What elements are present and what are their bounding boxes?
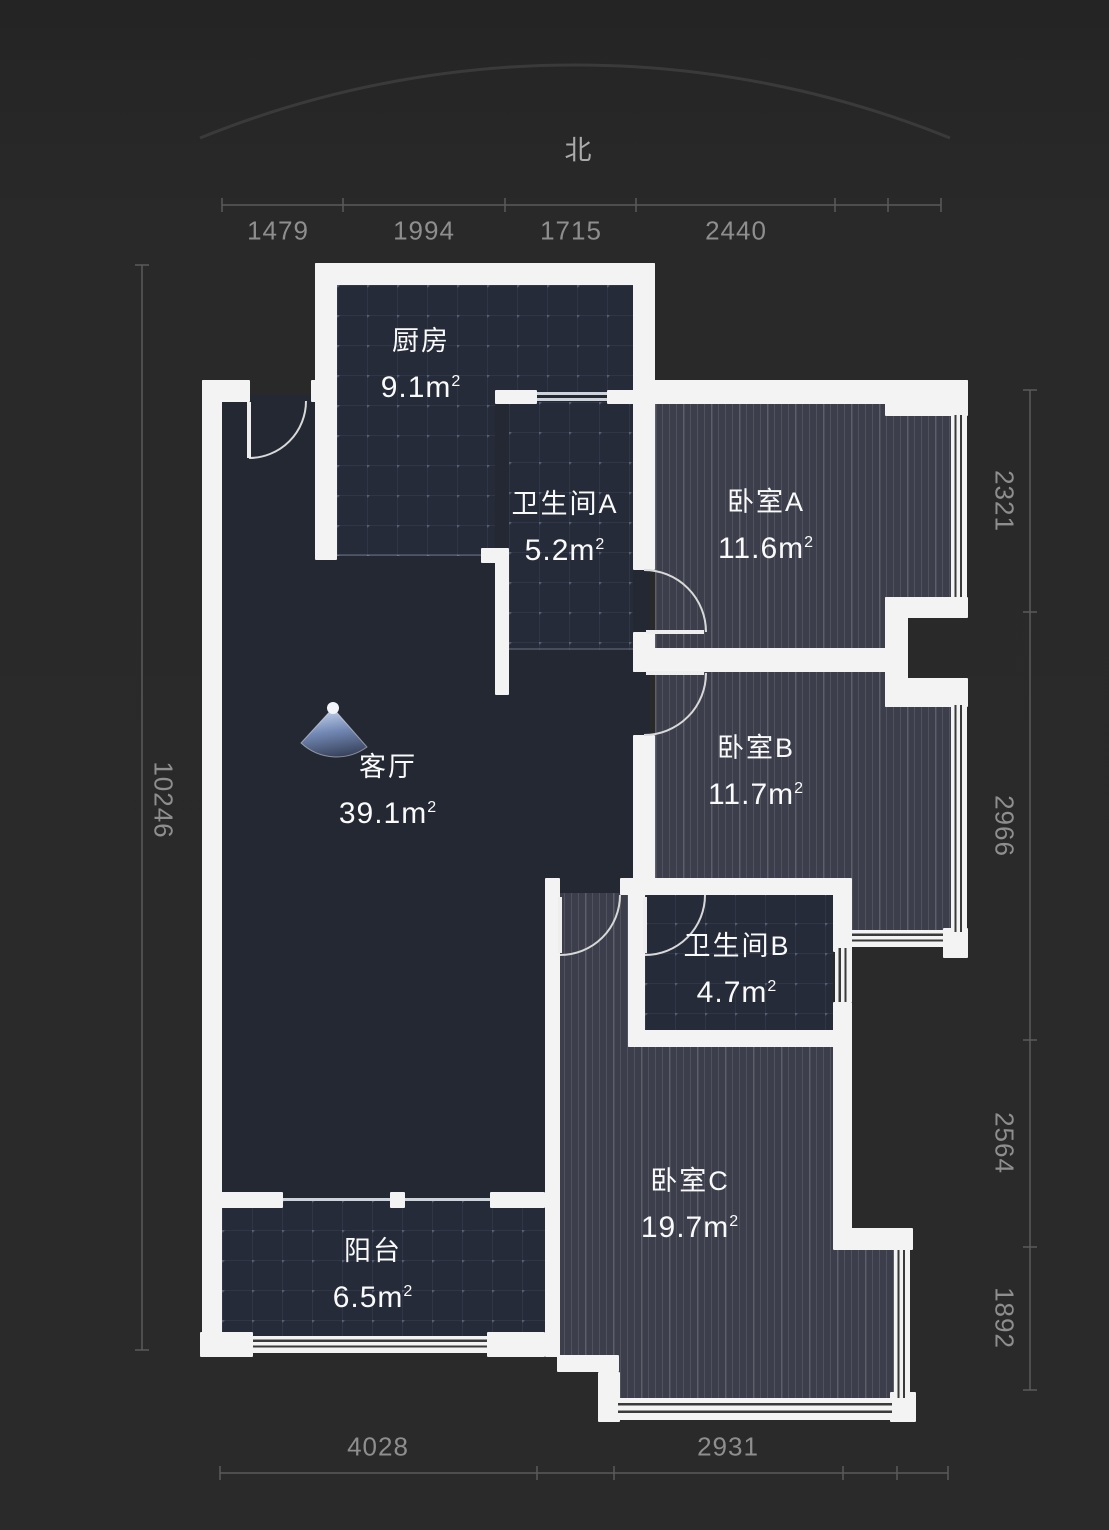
dim-right-4: 1892 — [989, 1287, 1020, 1349]
room-name: 卫生间B — [683, 925, 790, 967]
room-label-bedroom-c: 卧室C 19.7m2 — [641, 1160, 739, 1248]
room-label-balcony: 阳台 6.5m2 — [333, 1230, 414, 1318]
room-label-bathroom-a: 卫生间A 5.2m2 — [511, 483, 618, 571]
dim-right-3: 2564 — [989, 1112, 1020, 1174]
dim-right-2: 2966 — [989, 795, 1020, 857]
room-name: 卫生间A — [511, 483, 618, 525]
room-area: 9.1m2 — [381, 362, 462, 408]
room-name: 客厅 — [339, 746, 437, 788]
room-area: 19.7m2 — [641, 1202, 739, 1248]
dim-left-1: 10246 — [148, 761, 179, 838]
room-name: 阳台 — [333, 1230, 414, 1272]
room-area: 5.2m2 — [511, 525, 618, 571]
north-indicator: 北 — [565, 129, 592, 168]
room-name: 卧室C — [641, 1160, 739, 1202]
room-area: 4.7m2 — [683, 967, 790, 1013]
room-label-bedroom-b: 卧室B 11.7m2 — [708, 727, 804, 815]
room-name: 厨房 — [381, 320, 462, 362]
dim-top-1: 1479 — [247, 216, 309, 247]
room-label-living-room: 客厅 39.1m2 — [339, 746, 437, 834]
room-label-kitchen: 厨房 9.1m2 — [381, 320, 462, 408]
dim-bottom-2: 2931 — [697, 1432, 759, 1463]
labels-layer: 北 厨房 9.1m2 卫生间A 5.2m2 卧室A 11.6m2 客厅 39.1… — [0, 0, 1109, 1530]
room-label-bathroom-b: 卫生间B 4.7m2 — [683, 925, 790, 1013]
dim-top-3: 1715 — [540, 216, 602, 247]
dim-bottom-1: 4028 — [347, 1432, 409, 1463]
floorplan-canvas: 北 厨房 9.1m2 卫生间A 5.2m2 卧室A 11.6m2 客厅 39.1… — [0, 0, 1109, 1530]
dim-right-1: 2321 — [989, 470, 1020, 532]
room-area: 39.1m2 — [339, 788, 437, 834]
dim-top-4: 2440 — [705, 216, 767, 247]
room-area: 11.7m2 — [708, 769, 804, 815]
room-area: 11.6m2 — [718, 523, 814, 569]
room-name: 卧室B — [708, 727, 804, 769]
room-name: 卧室A — [718, 481, 814, 523]
dim-top-2: 1994 — [393, 216, 455, 247]
room-area: 6.5m2 — [333, 1272, 414, 1318]
room-label-bedroom-a: 卧室A 11.6m2 — [718, 481, 814, 569]
